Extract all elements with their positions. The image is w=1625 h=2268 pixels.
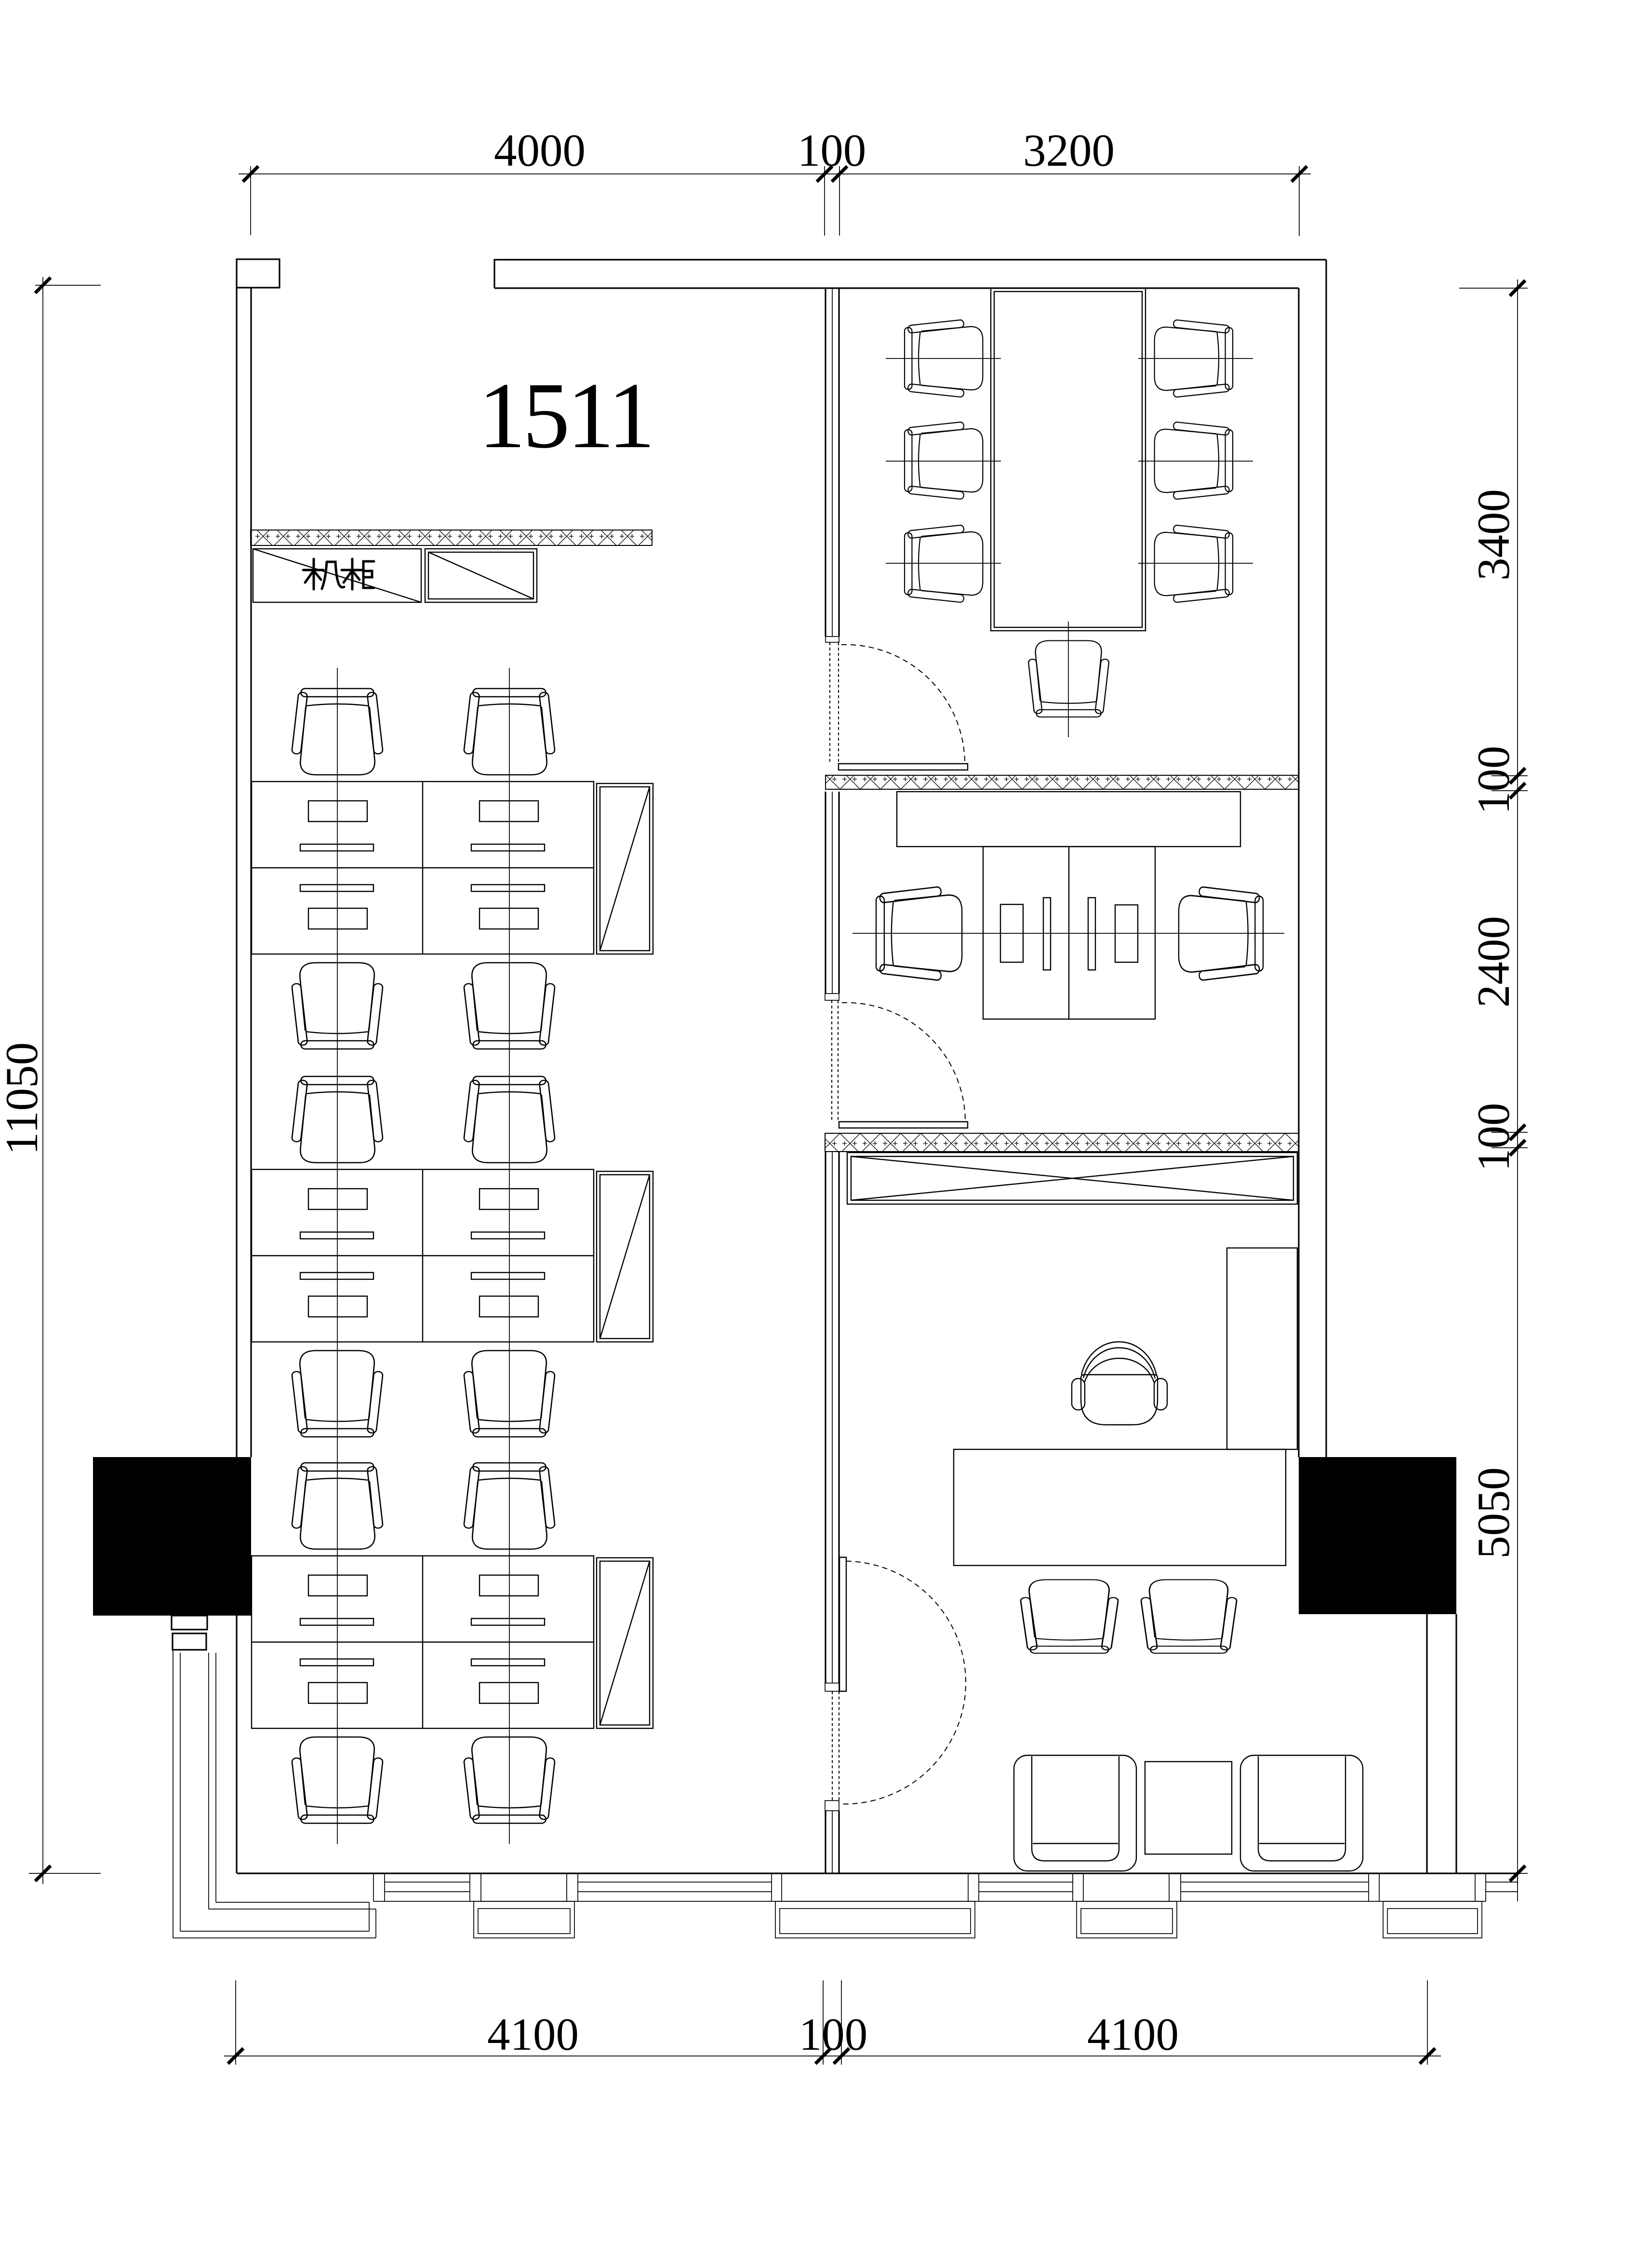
svg-text:100: 100 (1468, 1103, 1519, 1172)
svg-text:3200: 3200 (1023, 125, 1115, 176)
svg-text:3400: 3400 (1468, 489, 1519, 581)
svg-text:1511: 1511 (479, 363, 653, 468)
svg-text:4100: 4100 (1087, 2009, 1179, 2060)
svg-text:100: 100 (799, 2009, 868, 2060)
svg-text:4100: 4100 (487, 2009, 579, 2060)
svg-text:100: 100 (798, 125, 866, 176)
svg-text:100: 100 (1468, 746, 1519, 815)
svg-text:4000: 4000 (494, 125, 586, 176)
svg-text:5050: 5050 (1468, 1467, 1519, 1559)
svg-text:11050: 11050 (0, 1042, 47, 1155)
svg-text:2400: 2400 (1468, 916, 1519, 1008)
